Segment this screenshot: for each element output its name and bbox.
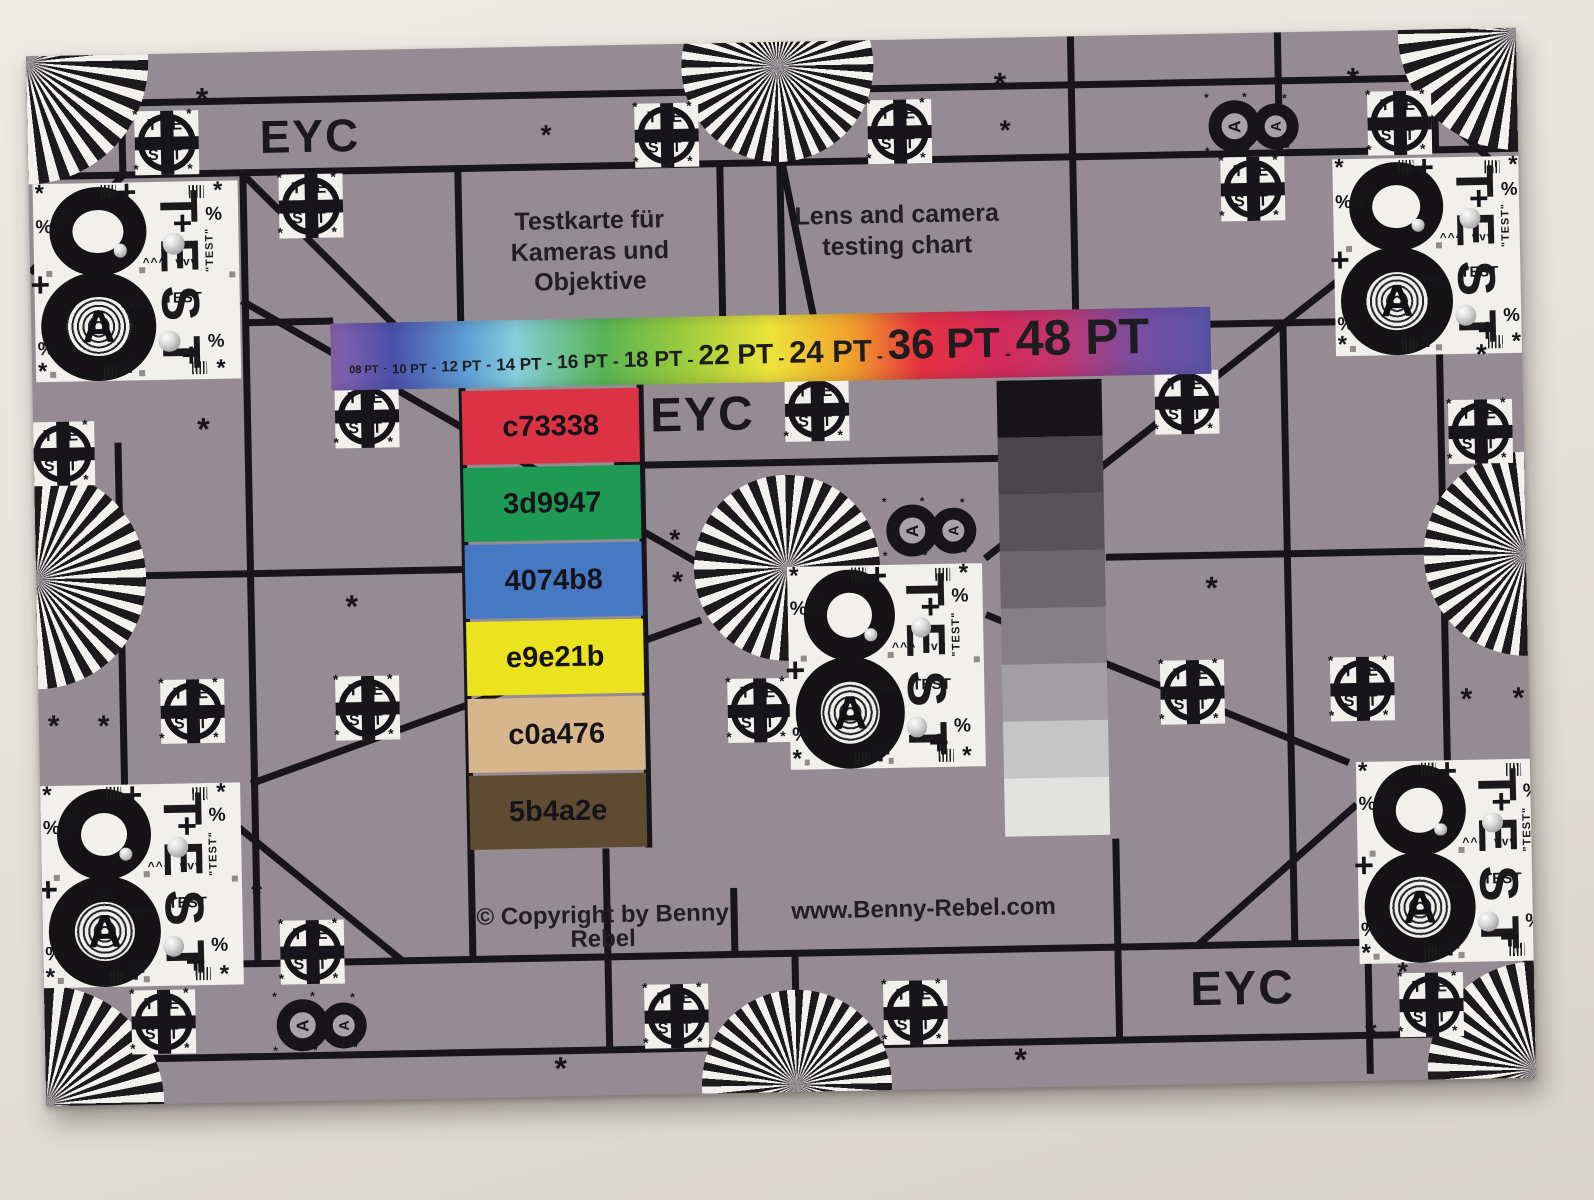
- asterisk-mark: *: [219, 960, 229, 988]
- asterisk-mark: *: [251, 880, 262, 908]
- font-size-separator: -: [378, 363, 392, 377]
- sphere-target: [1455, 304, 1476, 325]
- asterisk-mark: *: [333, 434, 339, 450]
- test-logo-letter-T: T: [172, 147, 182, 163]
- test-logo-letter-E: E: [1367, 664, 1378, 680]
- gray-square-mark: [1436, 242, 1442, 248]
- test-logo-letter-T: T: [1167, 377, 1177, 393]
- side-test-text: "TEST": [1521, 807, 1534, 852]
- mini-sideways-8-block: AA******: [276, 996, 365, 1054]
- asterisk-mark: *: [132, 106, 138, 122]
- asterisk-mark: *: [881, 976, 887, 992]
- asterisk-mark: *: [1512, 684, 1524, 714]
- test-logo-cross-horizontal: [279, 199, 343, 213]
- noise-line: %∥⁺: [56, 224, 118, 233]
- test-logo-cross-horizontal: [336, 701, 400, 715]
- asterisk-mark: *: [98, 712, 110, 742]
- test-circle-logo: TEST****: [30, 421, 95, 486]
- sunburst-fan: [680, 28, 876, 164]
- gray-square-mark: [1436, 344, 1442, 350]
- color-patch-c73338: c73338: [462, 388, 640, 465]
- sphere-target: [1482, 812, 1503, 833]
- arrow-marks: <<<: [1418, 271, 1442, 286]
- test-logo-letter-S: S: [1413, 1010, 1424, 1026]
- test-logo-letter-E: E: [197, 686, 208, 702]
- hatch-pattern: [1398, 160, 1413, 173]
- asterisk-mark: *: [1328, 652, 1334, 668]
- asterisk-mark: *: [333, 672, 339, 688]
- chart-decoration-layer: c733383d99474074b8e9e21bc0a4765b4a2eTEST…: [26, 28, 1536, 1106]
- small-sphere: [114, 244, 128, 258]
- percent-sign: %: [211, 934, 228, 956]
- asterisk-mark: *: [101, 883, 112, 911]
- small-test-text: TEST: [1483, 870, 1522, 888]
- test-logo-letter-S: S: [1168, 407, 1179, 423]
- letter-a-in-rings: A: [1380, 278, 1414, 324]
- percent-sign: %: [45, 943, 62, 965]
- asterisk-mark: *: [963, 545, 968, 559]
- color-patch-label: 4074b8: [465, 562, 643, 598]
- plus-cross: +: [1437, 754, 1458, 789]
- asterisk-mark: *: [1204, 91, 1209, 105]
- color-patch-c0a476: c0a476: [467, 696, 645, 773]
- test-logo-letter-E: E: [67, 428, 78, 444]
- gray-square-mark: [144, 976, 150, 982]
- test-logo-letter-E: E: [171, 117, 182, 133]
- grid-line-vertical: [1279, 320, 1298, 943]
- test-logo-letter-T: T: [798, 384, 808, 400]
- asterisk-mark: *: [1273, 206, 1279, 222]
- gray-square-mark: [1369, 851, 1375, 857]
- test-logo-cross-horizontal: [728, 703, 792, 717]
- test-logo-letter-E: E: [764, 685, 775, 701]
- asterisk-mark: *: [1282, 91, 1287, 105]
- test-logo-letter-S: S: [798, 414, 809, 430]
- hatch-pattern: [935, 568, 950, 581]
- asterisk-mark: *: [196, 83, 209, 115]
- test-logo-letter-T: T: [43, 429, 53, 445]
- test-logo-letter-T: T: [373, 713, 383, 729]
- asterisk-mark: *: [1451, 967, 1457, 983]
- hatch-pattern: [1402, 339, 1417, 352]
- gray-square-mark: [229, 272, 235, 278]
- test-circle-logo: TEST****: [131, 989, 196, 1054]
- asterisk-mark: *: [216, 355, 226, 383]
- color-patch-4074b8: 4074b8: [465, 542, 643, 619]
- resolution-noise-text: ≣⁺∥≡✱<<<%∥⁺: [809, 592, 868, 618]
- test-circle-logo: TEST****: [784, 377, 849, 442]
- test-logo-letter-S: S: [349, 713, 360, 729]
- asterisk-mark: *: [1460, 685, 1472, 715]
- sunburst-fan-center-soft: [26, 467, 148, 691]
- chevrons-up: ^^^: [147, 858, 171, 872]
- photo-of-lens-test-chart: { "photo": { "background_top": "#EDEBE4"…: [0, 0, 1594, 1200]
- asterisk-mark: *: [726, 729, 732, 745]
- test-circle-logo: TEST****: [1330, 656, 1395, 721]
- font-size-label-10-pt: 10 PT: [392, 362, 427, 378]
- color-patch-e9e21b: e9e21b: [466, 619, 644, 696]
- asterisk-mark: *: [883, 549, 888, 563]
- asterisk-mark: *: [1501, 449, 1507, 465]
- asterisk-mark: *: [962, 742, 972, 770]
- test-logo-cross-horizontal: [135, 136, 199, 150]
- test-logo-letter-S: S: [293, 957, 304, 973]
- gray-square-mark: [888, 758, 894, 764]
- test-logo-letter-T: T: [1343, 664, 1353, 680]
- test-logo-letter-E: E: [317, 927, 328, 943]
- plus-cross: +: [120, 349, 140, 383]
- asterisk-mark: *: [158, 675, 164, 691]
- asterisk-mark: *: [633, 154, 639, 170]
- asterisk-mark: *: [34, 180, 44, 208]
- test-logo-letter-E: E: [681, 991, 692, 1007]
- asterisk-mark: *: [783, 428, 789, 444]
- test-circle-logo: TEST****: [644, 983, 709, 1048]
- test-logo-letter-E: E: [1485, 406, 1496, 422]
- asterisk-mark: *: [273, 1044, 278, 1058]
- asterisk-mark: *: [83, 471, 89, 487]
- chevrons-down: vvv: [1494, 834, 1517, 848]
- asterisk-mark: *: [331, 223, 337, 239]
- hatch-pattern: [196, 967, 211, 980]
- test-logo-letter-E: E: [920, 987, 931, 1003]
- asterisk-mark: *: [186, 105, 192, 121]
- font-size-separator: -: [773, 349, 789, 370]
- hatch-pattern: [110, 971, 125, 984]
- test-logo-letter-S: S: [897, 1018, 908, 1034]
- test-logo-cross-horizontal: [635, 128, 699, 142]
- test8-block: ≣⁺∥≡✱<<<%∥⁺ATEST"TEST"TEST^^^vvv<<<+++++…: [33, 180, 242, 382]
- side-test-text: "TEST": [204, 228, 217, 272]
- test-logo-letter-T: T: [647, 110, 657, 126]
- hatch-pattern: [192, 361, 208, 374]
- side-test-text: "TEST": [950, 612, 963, 657]
- gray-square-mark: [58, 978, 64, 984]
- test-circle-logo: TEST****: [134, 110, 199, 175]
- test-circle-logo: TEST****: [160, 679, 225, 744]
- asterisk-mark: *: [212, 674, 218, 690]
- test-logo-letter-S: S: [145, 1027, 156, 1043]
- asterisk-mark: *: [1205, 572, 1218, 604]
- gray-square-mark: [888, 652, 894, 658]
- asterisk-mark: *: [936, 1030, 942, 1046]
- test-logo-letter-T: T: [1233, 164, 1243, 180]
- chevrons-down: vvv: [923, 639, 947, 653]
- gray-square-mark: [50, 372, 56, 378]
- font-size-label-16-pt: 16 PT: [557, 352, 608, 374]
- test-logo-cross-horizontal: [132, 1015, 196, 1029]
- asterisk-mark: *: [330, 168, 336, 184]
- hatch-pattern: [1484, 160, 1499, 173]
- asterisk-mark: *: [187, 160, 193, 176]
- asterisk-mark: *: [82, 416, 88, 432]
- test-logo-letter-T: T: [880, 107, 890, 123]
- asterisk-mark: *: [1014, 1043, 1027, 1075]
- test-logo-cross-horizontal: [644, 1009, 708, 1023]
- test-logo-cross-horizontal: [1448, 424, 1512, 438]
- test-logo-cross-horizontal: [280, 945, 344, 959]
- font-size-separator: -: [872, 347, 888, 368]
- test-logo-letter-T: T: [682, 1021, 692, 1037]
- test-logo-letter-T: T: [1192, 407, 1202, 423]
- test-logo-letter-T: T: [1258, 194, 1268, 210]
- sunburst-fan-center-soft: [700, 988, 894, 1106]
- test-logo-letter-S: S: [1234, 194, 1245, 210]
- chevrons-down: vvv: [179, 858, 202, 872]
- test-logo-cross-horizontal: [868, 125, 932, 139]
- noise-line: %∥⁺: [1378, 803, 1438, 812]
- letter-a-in-rings: A: [833, 689, 868, 736]
- asterisk-mark: *: [643, 1035, 649, 1051]
- test-logo-letter-S: S: [292, 211, 303, 227]
- hatch-pattern: [1425, 946, 1440, 959]
- mini8-letter-a: A: [904, 524, 921, 537]
- test-logo-cross-horizontal: [883, 1005, 947, 1019]
- asterisk-mark: *: [1358, 758, 1368, 786]
- mini8-letter-a: A: [1226, 120, 1243, 133]
- letter-a-in-rings: A: [1403, 884, 1437, 931]
- eyc-label-bottom-right: EYC: [1190, 964, 1296, 1014]
- asterisk-mark: *: [45, 964, 55, 992]
- font-size-label-36-pt: 36 PT: [887, 322, 1000, 368]
- sphere-target: [163, 233, 185, 255]
- asterisk-mark: *: [1446, 395, 1452, 411]
- asterisk-mark: *: [1398, 1023, 1404, 1039]
- test-logo-letter-E: E: [372, 391, 383, 407]
- asterisk-mark: *: [920, 149, 926, 165]
- test-logo-letter-S: S: [174, 716, 185, 732]
- gray-square-mark: [46, 271, 52, 277]
- grayscale-step-4: [1000, 549, 1106, 608]
- small-test-text: TEST: [164, 290, 202, 307]
- test-circle-logo: TEST****: [1448, 399, 1513, 464]
- asterisk-mark: *: [1447, 450, 1453, 466]
- test-logo-letter-T: T: [198, 716, 208, 732]
- gray-square-mark: [1458, 847, 1464, 853]
- small-test-text: TEST: [168, 894, 207, 912]
- asterisk-mark: *: [779, 673, 785, 689]
- test8-block: ≣⁺∥≡✱<<<%∥⁺ATEST"TEST"TEST^^^vvv<<<+++++…: [787, 563, 986, 770]
- chevrons-up: ^^^: [892, 640, 917, 654]
- test-logo-letter-T: T: [1173, 667, 1183, 683]
- plus-cross: +: [1440, 930, 1461, 965]
- percent-sign: %: [208, 329, 225, 351]
- asterisk-mark: *: [672, 568, 683, 596]
- asterisk-mark: *: [310, 989, 315, 1003]
- test-logo-letter-T: T: [1486, 436, 1496, 452]
- color-patch-label: 5b4a2e: [469, 793, 647, 829]
- small-test-text: TEST: [1460, 265, 1498, 282]
- percent-sign: %: [43, 818, 60, 840]
- asterisk-mark: *: [1398, 958, 1409, 984]
- test-logo-cross-horizontal: [161, 704, 225, 718]
- test-logo-letter-T: T: [1405, 128, 1415, 144]
- color-patch-5b4a2e: 5b4a2e: [469, 773, 647, 850]
- sunburst-fan: [26, 467, 148, 691]
- asterisk-mark: *: [1329, 707, 1335, 723]
- chevrons-up: ^^^: [1462, 834, 1486, 848]
- sphere-target: [167, 836, 188, 857]
- hatch-pattern: [106, 787, 121, 800]
- grayscale-step-1: [996, 379, 1102, 438]
- asterisk-mark: *: [780, 728, 786, 744]
- test-circle-logo: TEST****: [334, 383, 399, 448]
- asterisk-mark: *: [540, 121, 551, 149]
- asterisk-mark: *: [1508, 152, 1518, 179]
- percent-sign: %: [792, 725, 810, 747]
- website-text: www.Benny-Rebel.com: [758, 894, 1088, 924]
- asterisk-mark: *: [1159, 711, 1165, 727]
- percent-sign: %: [951, 586, 969, 608]
- asterisk-mark: *: [1452, 1022, 1458, 1038]
- test-logo-letter-T: T: [317, 957, 327, 973]
- test-logo-letter-E: E: [1197, 667, 1208, 683]
- test-logo-letter-T: T: [372, 421, 382, 437]
- asterisk-mark: *: [789, 563, 799, 591]
- percent-sign: %: [208, 805, 225, 827]
- test-circle-logo: TEST****: [1399, 972, 1464, 1037]
- test-logo-letter-T: T: [657, 991, 667, 1007]
- percent-sign: %: [205, 202, 222, 224]
- test-logo-cross-horizontal: [1367, 116, 1431, 130]
- test-logo-letter-T: T: [147, 118, 157, 134]
- test-logo-letter-T: T: [672, 140, 682, 156]
- sphere-target: [163, 935, 184, 956]
- grayscale-step-3: [999, 493, 1105, 552]
- asterisk-mark: *: [1419, 86, 1425, 102]
- font-size-label-18-pt: 18 PT: [624, 348, 683, 373]
- font-size-label-08-pt: 08 PT: [349, 365, 379, 379]
- asterisk-mark: *: [42, 782, 52, 810]
- asterisk-mark: *: [1346, 63, 1359, 95]
- font-size-separator: -: [608, 352, 624, 373]
- test-logo-cross-horizontal: [785, 402, 849, 416]
- asterisk-mark: *: [277, 225, 283, 241]
- percent-sign: %: [1361, 919, 1378, 941]
- small-sphere: [119, 847, 132, 860]
- eyc-label-center: EYC: [650, 390, 756, 440]
- asterisk-mark: *: [216, 779, 226, 807]
- asterisk-mark: *: [1533, 936, 1535, 964]
- grayscale-step-5: [1001, 606, 1107, 665]
- plus-cross: +: [867, 559, 888, 594]
- percent-sign: %: [1523, 781, 1536, 803]
- asterisk-mark: *: [696, 979, 702, 995]
- side-test-text: "TEST": [207, 831, 220, 876]
- test8-block: ≣⁺∥≡✱<<<%∥⁺ATEST"TEST"TEST^^^vvv<<<+++++…: [1332, 156, 1536, 357]
- font-size-label-12-pt: 12 PT: [441, 359, 481, 377]
- asterisk-mark: *: [1212, 655, 1218, 671]
- arrow-marks: <<<: [871, 683, 896, 699]
- grayscale-step-6: [1002, 663, 1108, 722]
- asterisk-mark: *: [388, 725, 394, 741]
- asterisk-mark: *: [1338, 332, 1348, 359]
- gray-square-mark: [1459, 952, 1465, 958]
- font-size-separator: -: [682, 351, 698, 372]
- gray-square-mark: [800, 656, 806, 662]
- asterisk-mark: *: [669, 526, 680, 554]
- test-logo-cross-horizontal: [1160, 685, 1224, 699]
- test-logo-cross-horizontal: [31, 447, 95, 461]
- asterisk-mark: *: [1205, 145, 1210, 159]
- test-chart-card: c733383d99474074b8e9e21bc0a4765b4a2eTEST…: [26, 28, 1536, 1106]
- asterisk-mark: *: [1213, 710, 1219, 726]
- test-logo-letter-S: S: [44, 459, 55, 475]
- asterisk-mark: *: [1365, 1019, 1377, 1049]
- asterisk-mark: *: [642, 980, 648, 996]
- color-patch-label: c0a476: [468, 716, 646, 752]
- hatch-pattern: [1510, 943, 1525, 956]
- percent-sign: %: [1503, 304, 1520, 326]
- percent-sign: %: [954, 716, 972, 738]
- hatch-pattern: [1421, 762, 1436, 775]
- gray-square-mark: [804, 759, 810, 765]
- asterisk-mark: *: [387, 433, 393, 449]
- asterisk-mark: *: [1207, 420, 1213, 436]
- percent-sign: %: [790, 599, 808, 621]
- asterisk-mark: *: [213, 729, 219, 745]
- asterisk-mark: *: [278, 916, 284, 932]
- asterisk-mark: *: [1285, 141, 1290, 155]
- sphere-target: [158, 330, 180, 352]
- asterisk-mark: *: [159, 730, 165, 746]
- test-logo-cross-horizontal: [1221, 182, 1285, 196]
- asterisk-mark: *: [882, 1031, 888, 1047]
- font-size-separator: -: [481, 357, 496, 375]
- test-logo-letter-E: E: [1436, 979, 1447, 995]
- gray-square-mark: [144, 871, 150, 877]
- asterisk-mark: *: [1158, 656, 1164, 672]
- asterisk-mark: *: [183, 984, 189, 1000]
- asterisk-mark: *: [48, 712, 60, 742]
- asterisk-mark: *: [213, 177, 223, 205]
- test-circle-logo: TEST****: [1220, 156, 1285, 221]
- test-logo-letter-T: T: [173, 687, 183, 703]
- asterisk-mark: *: [697, 1034, 703, 1050]
- resolution-noise-text: ≣⁺∥≡✱<<<%∥⁺: [56, 208, 118, 233]
- test-logo-letter-T: T: [1198, 697, 1208, 713]
- test-logo-letter-E: E: [1191, 377, 1202, 393]
- asterisk-mark: *: [725, 674, 731, 690]
- asterisk-mark: *: [1218, 152, 1224, 168]
- small-test-text: TEST: [912, 675, 951, 693]
- asterisk-mark: *: [632, 99, 638, 115]
- plus-cross: +: [1414, 151, 1434, 185]
- asterisk-mark: *: [1334, 155, 1344, 182]
- arrow-marks: <<<: [126, 901, 151, 917]
- asterisk-mark: *: [353, 1040, 358, 1054]
- test-logo-cross-horizontal: [1155, 395, 1219, 409]
- asterisk-mark: *: [1383, 706, 1389, 722]
- asterisk-mark: *: [686, 98, 692, 114]
- test-logo-letter-T: T: [905, 136, 915, 152]
- asterisk-mark: *: [1512, 329, 1522, 356]
- test-logo-letter-T: T: [896, 988, 906, 1004]
- asterisk-mark: *: [837, 427, 843, 443]
- asterisk-mark: *: [960, 495, 965, 509]
- test-logo-cross-horizontal: [1399, 997, 1463, 1011]
- test-logo-letter-S: S: [648, 140, 659, 156]
- asterisk-mark: *: [920, 494, 925, 508]
- plus-cross: +: [125, 954, 146, 989]
- copyright-text: © Copyright by Benny Rebel: [471, 901, 734, 954]
- letter-a-in-rings: A: [88, 908, 122, 955]
- gray-square-mark: [232, 875, 238, 881]
- title-german: Testkarte für Kameras und Objektive: [458, 203, 722, 300]
- asterisk-mark: *: [350, 990, 355, 1004]
- chevrons-up: ^^^: [1440, 230, 1464, 244]
- chevrons-down: vvv: [1472, 229, 1495, 243]
